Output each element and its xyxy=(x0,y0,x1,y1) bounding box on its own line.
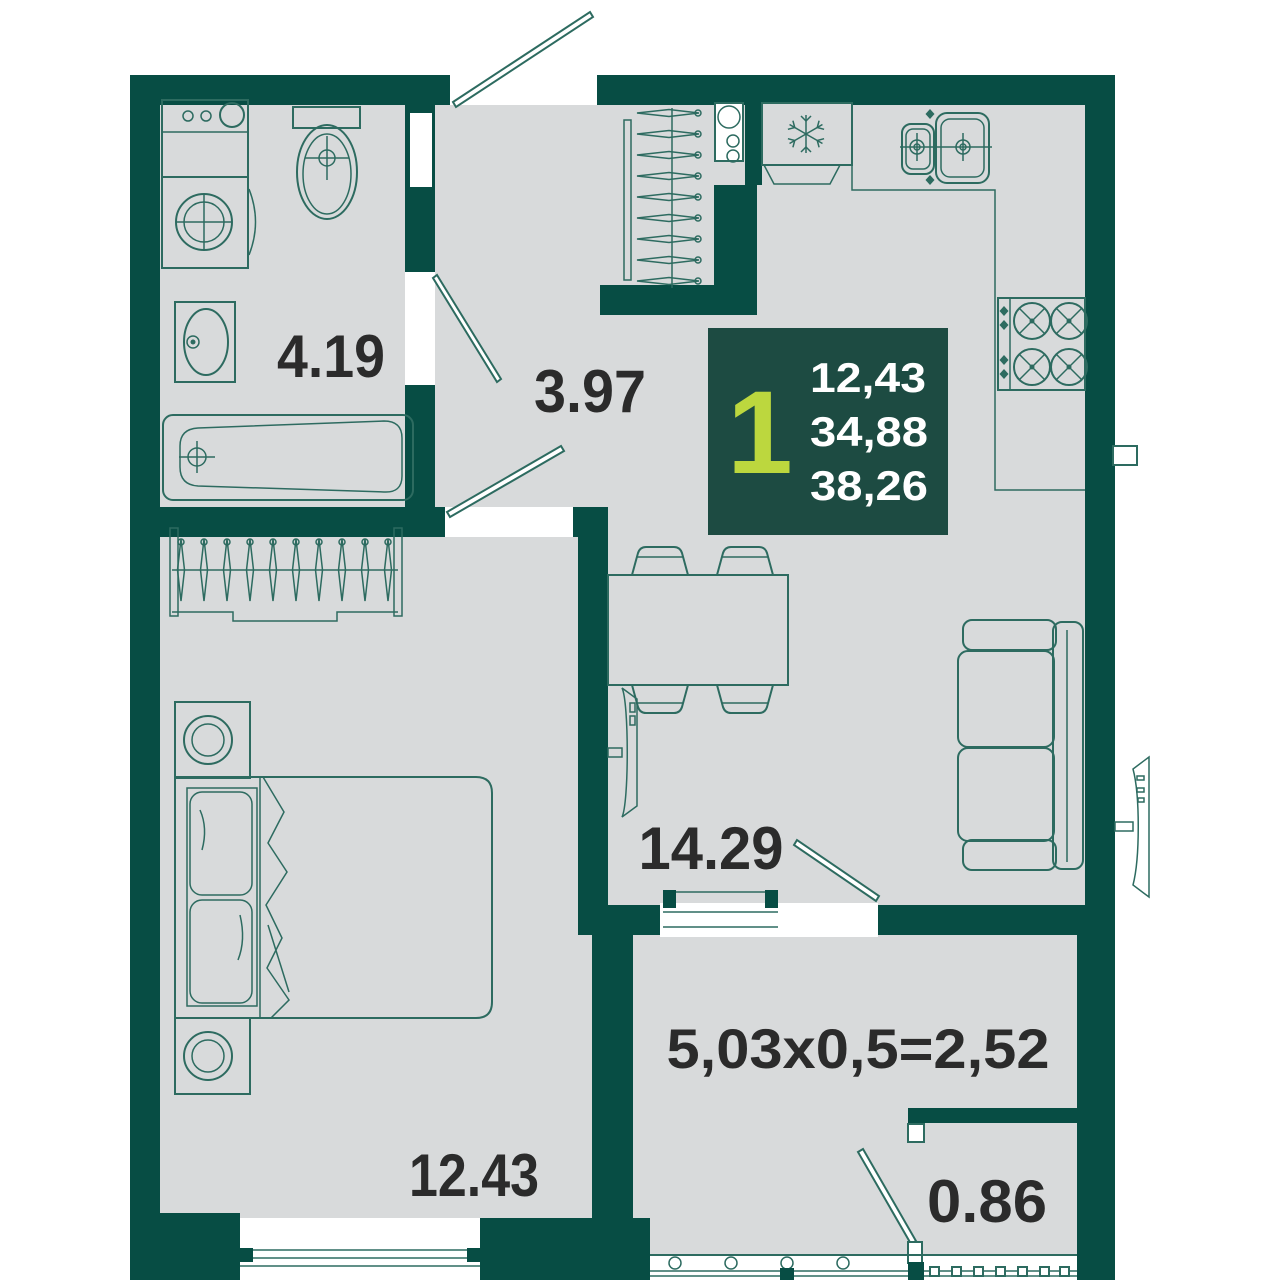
storage-door-jamb-top xyxy=(908,1124,924,1142)
storage-door-jamb-bottom xyxy=(908,1242,922,1263)
bedroom-floor xyxy=(160,537,592,1218)
balcony-formula-label: 5,03x0,5=2,52 xyxy=(667,1017,1050,1080)
wall-balcony-north-right xyxy=(878,905,1085,935)
bedroom-area-label: 12.43 xyxy=(409,1142,539,1209)
living-kitchen-area-label: 14.29 xyxy=(639,815,784,882)
wall-left xyxy=(130,75,160,1220)
chair-icon xyxy=(717,547,773,575)
balcony-door-opening xyxy=(780,903,878,937)
info-area-line2: 34,88 xyxy=(810,408,928,455)
chair-icon xyxy=(717,685,773,713)
balcony-glazing xyxy=(650,1255,1077,1280)
bedroom-door-opening xyxy=(445,507,573,537)
water-heater-icon xyxy=(715,103,743,162)
info-area-line1: 12,43 xyxy=(810,354,926,401)
wall-niche xyxy=(410,113,432,187)
floor-plan-svg: 4.19 3.97 14.29 12.43 5,03x0,5=2,52 0.86… xyxy=(0,0,1280,1280)
info-area-line3: 38,26 xyxy=(810,462,928,509)
entrance-door-leaf xyxy=(453,12,593,107)
floor-plan-canvas: 4.19 3.97 14.29 12.43 5,03x0,5=2,52 0.86… xyxy=(0,0,1280,1280)
wall-right xyxy=(1085,75,1115,905)
bedroom-window-opening xyxy=(240,1218,480,1280)
rooms-count: 1 xyxy=(727,367,793,499)
wall-closet-south xyxy=(600,285,757,315)
storage-area-label: 0.86 xyxy=(927,1168,1047,1235)
vent-icon xyxy=(1113,446,1137,465)
balcony-window-opening xyxy=(660,903,780,937)
wall-bottom-left-corner xyxy=(130,1213,240,1280)
wall-bedroom-living xyxy=(578,507,608,935)
wall-bathroom-east-lower xyxy=(405,385,435,510)
bathroom-area-label: 4.19 xyxy=(277,323,385,390)
ac-unit-icon xyxy=(1115,757,1149,897)
hallway-area-label: 3.97 xyxy=(534,358,646,425)
wall-bottom-center xyxy=(480,1218,650,1280)
info-box: 1 12,43 34,88 38,26 xyxy=(708,328,948,535)
chair-icon xyxy=(632,547,688,575)
chair-icon xyxy=(632,685,688,713)
wall-balcony-right xyxy=(1077,905,1115,1280)
dining-table-icon xyxy=(608,575,788,685)
wall-bedroom-balcony xyxy=(592,905,633,1220)
wall-balcony-north-left xyxy=(608,905,663,935)
wall-top-right xyxy=(597,75,1115,105)
wall-boiler-niche xyxy=(745,103,762,185)
wall-storage-north xyxy=(908,1108,1077,1123)
bathroom-door-opening xyxy=(405,272,435,385)
